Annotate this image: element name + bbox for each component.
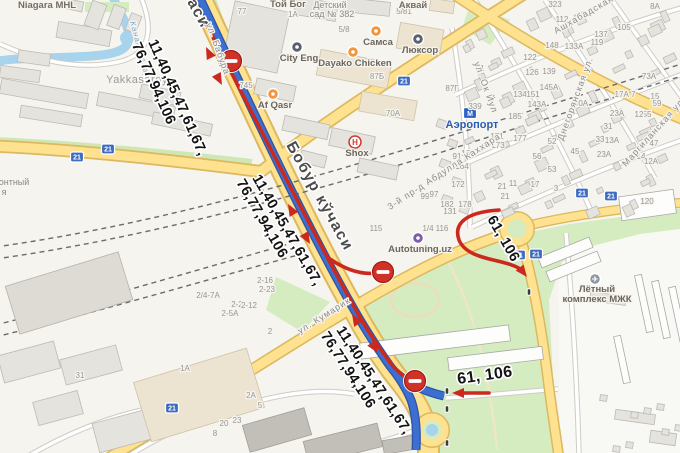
house-number: 323	[548, 0, 562, 9]
poi-label: Autotuning.uz	[388, 244, 452, 255]
place-label: я	[2, 187, 7, 197]
building	[626, 442, 634, 449]
house-number: 116	[436, 224, 449, 233]
bus-stop-icon	[445, 406, 449, 413]
building	[675, 425, 680, 432]
house-number: 120	[640, 197, 654, 206]
house-number: 17	[531, 180, 540, 189]
pond	[426, 424, 438, 436]
poi-marker-dark	[413, 34, 424, 45]
house-number: 2-23	[259, 285, 276, 294]
house-number: 119	[591, 38, 604, 47]
house-number: 5	[258, 401, 263, 410]
house-number: 145А	[540, 83, 559, 92]
house-number: 185	[508, 112, 522, 121]
road-number-sign: 21	[530, 249, 543, 259]
house-number: 148	[545, 41, 559, 50]
house-number: 2-12	[241, 301, 258, 310]
house-number: 151	[526, 90, 540, 99]
hotel-icon-letter: H	[352, 138, 358, 147]
house-number: 73А	[642, 72, 657, 81]
road-number-sign: 21	[605, 191, 618, 201]
house-number: 87Б	[370, 72, 384, 81]
house-number: 8	[213, 429, 218, 438]
road-number-sign: 21	[576, 188, 589, 198]
building	[631, 412, 639, 419]
house-number: 45	[571, 147, 580, 156]
map-svg: 2121212121212121HM✈ Бобур кўчаси аси 745…	[0, 0, 680, 453]
place-label: Niagara MHL	[18, 0, 76, 11]
house-number: 2/4-7А	[196, 291, 220, 300]
building	[657, 404, 665, 411]
house-number: 3	[554, 184, 559, 193]
house-number: 12А	[644, 157, 659, 166]
house-number: 13А	[605, 136, 620, 145]
house-number: 59	[653, 99, 662, 108]
house-number: 339	[468, 102, 482, 111]
bus-stop-icon	[445, 388, 449, 395]
poi-marker-air: ✈	[590, 274, 601, 285]
house-number: 143А	[528, 100, 547, 109]
house-number: 122	[523, 53, 537, 62]
house-number: 137	[594, 30, 608, 39]
house-number: 2-16	[257, 276, 274, 285]
building	[644, 408, 652, 415]
house-number: 1А	[180, 364, 190, 373]
road-number-text: 21	[104, 147, 112, 154]
poi-icon-dot	[416, 37, 420, 41]
road-number-text: 21	[578, 191, 586, 198]
house-number: 131	[443, 207, 457, 216]
house-number: 77	[238, 7, 247, 16]
poi-marker-food	[268, 89, 279, 100]
road-number-text: 21	[607, 194, 615, 201]
house-number: 31	[76, 371, 85, 380]
house-number: 126	[525, 68, 539, 77]
house-number: 23А	[597, 150, 612, 159]
metro-icon-letter: M	[467, 111, 473, 118]
house-number: 33	[596, 135, 605, 144]
poi-icon-dot	[416, 236, 420, 240]
poi-marker-food	[348, 47, 359, 58]
road-number-text: 21	[73, 155, 81, 162]
house-number: 133А	[565, 42, 584, 51]
house-number: 21	[501, 192, 510, 201]
house-number: 12	[635, 110, 644, 119]
building	[600, 395, 608, 402]
map-canvas[interactable]: 2121212121212121HM✈ Бобур кўчаси аси 745…	[0, 0, 680, 453]
poi-label: Люксор	[402, 45, 438, 56]
house-number: 2А	[246, 391, 256, 400]
place-label: Той Бог	[270, 0, 306, 10]
road-number-text: 21	[532, 252, 540, 259]
poi-label: Самса	[363, 37, 394, 48]
place-label: онтный	[0, 177, 29, 187]
house-number: 11	[509, 179, 518, 188]
road-number-sign: 21	[71, 152, 84, 162]
no-entry-bar	[377, 270, 390, 274]
poi-marker-dark	[292, 42, 303, 53]
house-number: 2	[268, 327, 273, 336]
house-number: 31	[604, 122, 613, 131]
house-number: 1А	[288, 10, 298, 19]
bus-stop-icon	[445, 440, 449, 447]
poi-icon-dot	[374, 29, 378, 33]
house-number: 87Г	[445, 84, 459, 93]
no-entry-icon	[403, 369, 427, 393]
poi-label: Af Qasr	[258, 100, 293, 111]
poi-label: Shox	[345, 148, 369, 159]
house-number: 5/8	[338, 25, 350, 34]
no-entry-bar	[409, 379, 422, 383]
poi-marker-auto	[413, 233, 424, 244]
airplane-icon: ✈	[592, 276, 598, 284]
house-number: 134	[513, 90, 527, 99]
house-number: 55	[643, 110, 652, 119]
place-label: сад № 382	[310, 9, 354, 19]
house-number: 1/4	[422, 224, 434, 233]
house-number: 23А	[610, 109, 625, 118]
no-entry-icon	[371, 260, 395, 284]
poi-icon-dot	[271, 92, 275, 96]
house-number: 56	[533, 152, 542, 161]
building	[662, 429, 670, 436]
house-number: 105	[617, 23, 631, 32]
poi-marker-food	[371, 26, 382, 37]
road-number-sign: 21	[166, 403, 179, 413]
road-number-text: 21	[400, 79, 408, 86]
house-number: 177	[513, 134, 527, 143]
house-number: 115	[370, 224, 383, 233]
place-label: Аквай	[399, 0, 428, 11]
house-number: 70А	[386, 109, 401, 118]
poi-label: Dayako Chicken	[318, 58, 392, 69]
house-number: 17А 7	[615, 90, 636, 99]
poi-label: комплекс МЖК	[562, 294, 631, 305]
house-number: 53	[548, 165, 557, 174]
road-number-sign: 21	[102, 144, 115, 154]
house-number: 97	[430, 190, 439, 199]
house-number: 172	[451, 180, 465, 189]
house-number: 178	[458, 200, 472, 209]
house-number: 21	[498, 182, 507, 191]
poi-label: Аэропорт	[446, 119, 500, 131]
road-number-sign: 21	[398, 76, 411, 86]
house-number: 139	[542, 67, 556, 76]
house-number: 20	[220, 419, 229, 428]
house-number: 2-5А	[222, 309, 240, 318]
poi-marker-hotel: H	[349, 136, 361, 148]
house-number: 745	[239, 81, 253, 90]
road-number-text: 21	[168, 406, 176, 413]
poi-icon-dot	[351, 50, 355, 54]
house-number: 23	[233, 416, 242, 425]
building	[613, 446, 621, 453]
house-number: 8А	[650, 2, 660, 11]
poi-label: City Eng	[280, 53, 319, 64]
bus-stop-icon	[527, 289, 531, 296]
poi-icon-dot	[295, 45, 299, 49]
